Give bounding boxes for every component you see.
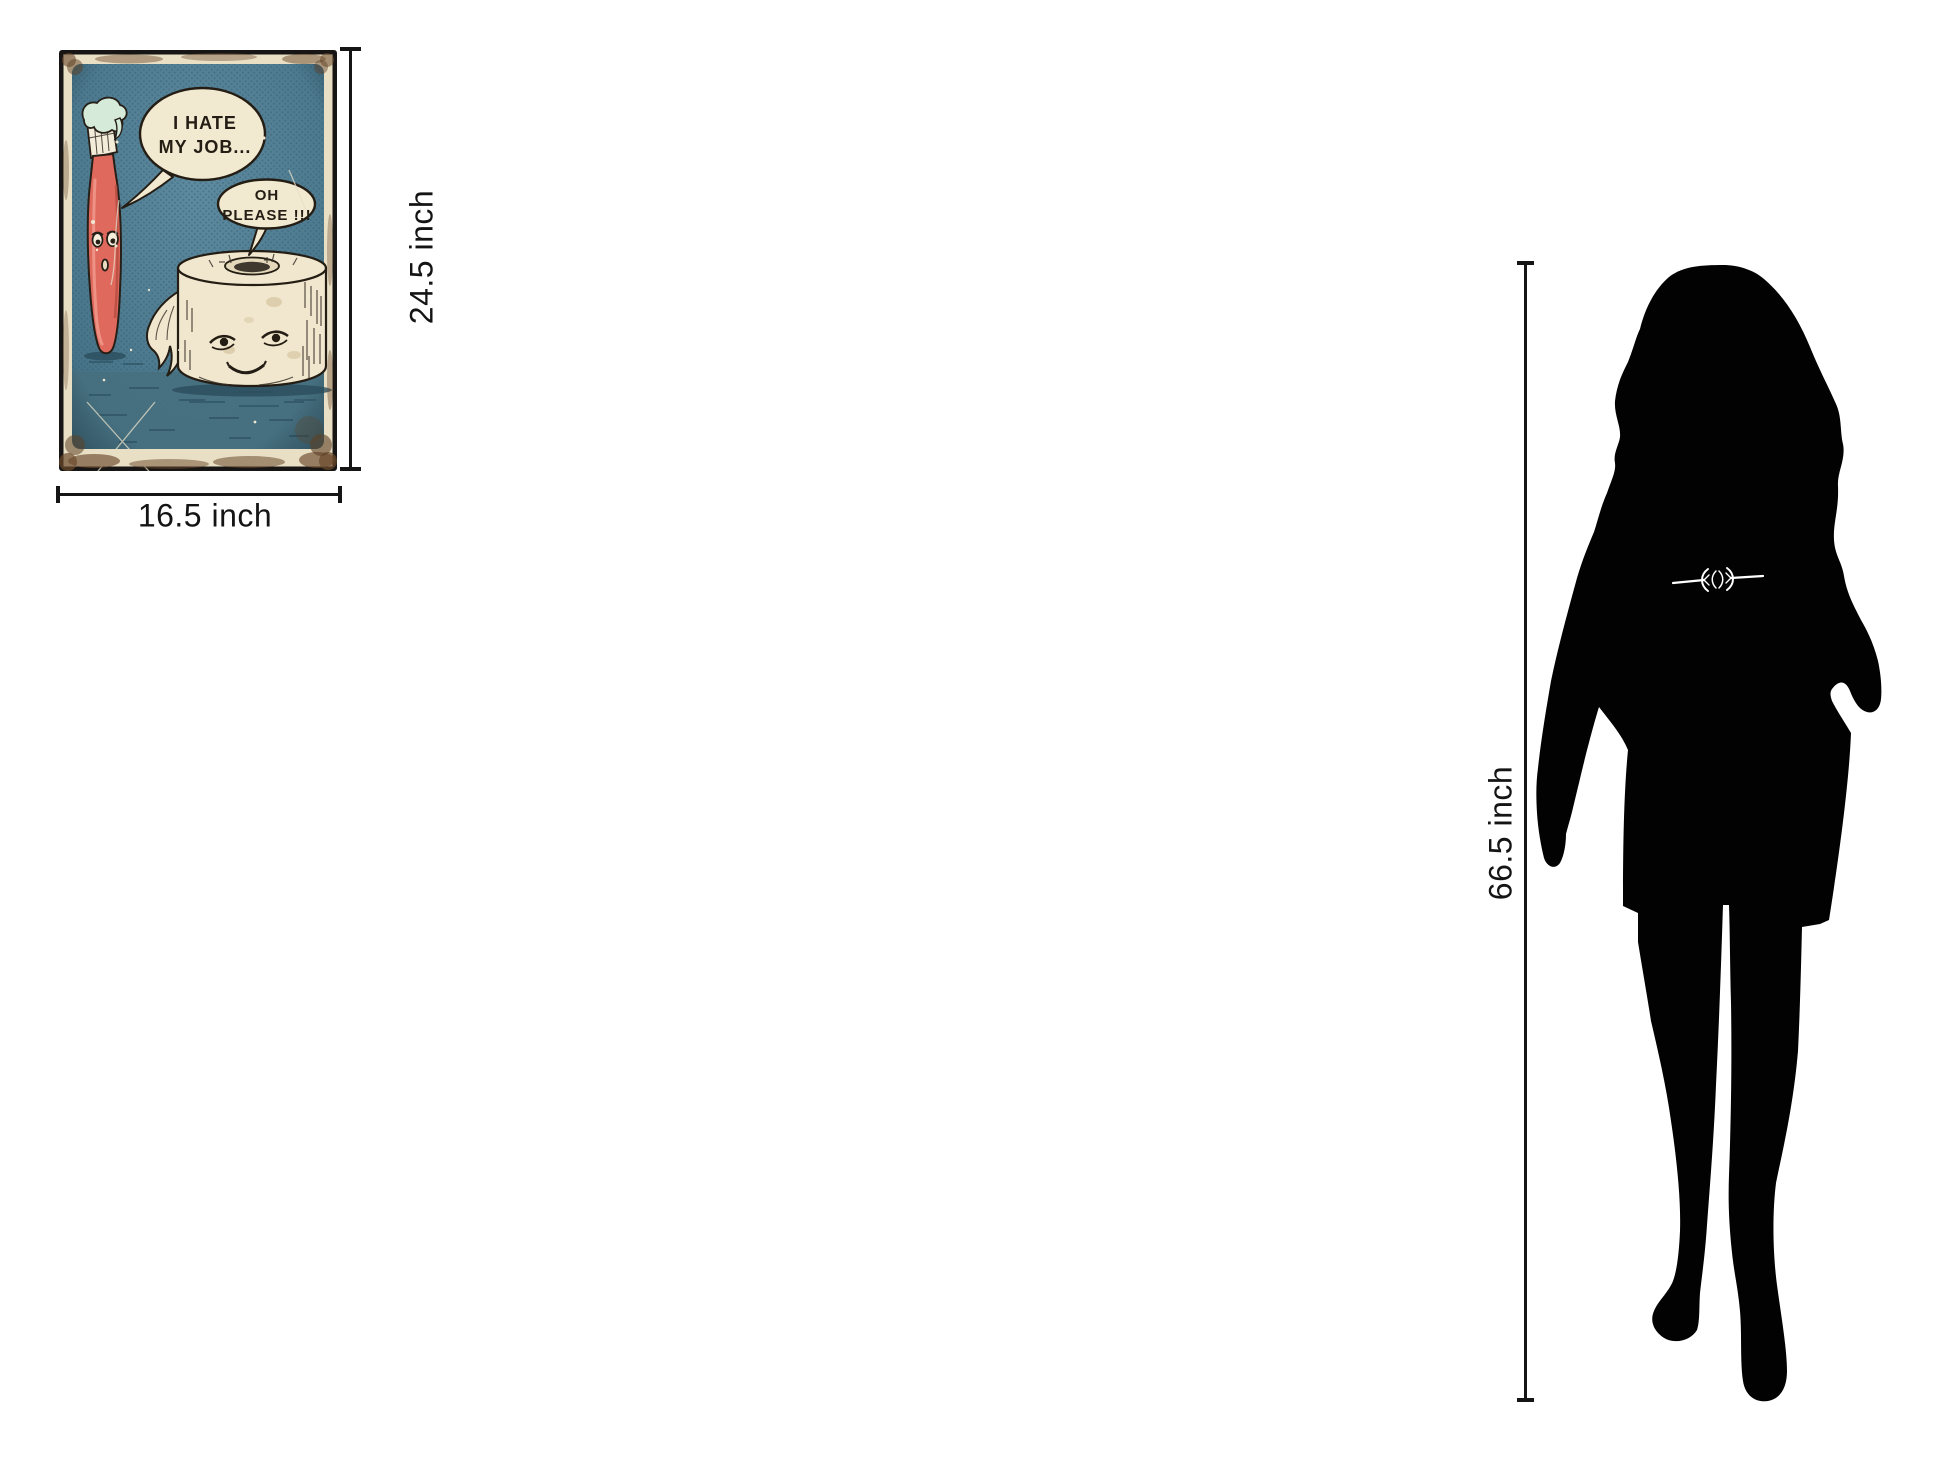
tick-right — [338, 486, 342, 503]
poster-height-label: 24.5 inch — [404, 190, 441, 324]
tick-bottom — [340, 467, 361, 471]
tick-top — [340, 47, 361, 51]
figure-height-label: 66.5 inch — [1483, 766, 1520, 900]
poster-sign: I HATE MY JOB... OH PLEASE !!! — [59, 50, 337, 471]
bubble-toilet-paper-line2: PLEASE !!! — [222, 207, 311, 224]
tick-bottom — [1517, 1398, 1534, 1402]
bubble-toothbrush-line1: I HATE — [173, 113, 237, 133]
product-size-diagram: I HATE MY JOB... OH PLEASE !!! — [0, 0, 1946, 1460]
woman-silhouette — [1530, 263, 1890, 1403]
tick-top — [1517, 261, 1534, 265]
poster-width-label: 16.5 inch — [138, 498, 272, 535]
bubble-toilet-paper-line1: OH — [255, 187, 280, 204]
tick-left — [56, 486, 60, 503]
woman-silhouette-body — [1536, 265, 1881, 1401]
bubble-toothbrush-line2: MY JOB... — [159, 137, 252, 157]
